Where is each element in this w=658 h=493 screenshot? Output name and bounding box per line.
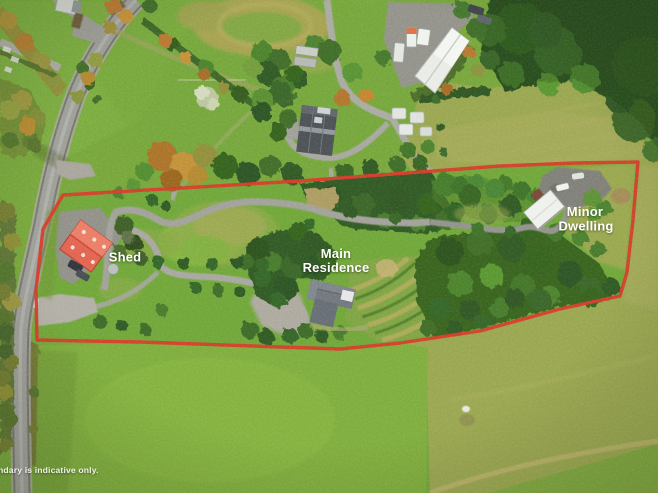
svg-text:ndary is indicative only.: ndary is indicative only. [0,465,99,475]
svg-text:Residence: Residence [303,260,370,275]
svg-text:Dwelling: Dwelling [558,219,613,234]
svg-text:Main: Main [321,246,351,261]
svg-text:Minor: Minor [567,204,603,219]
svg-text:Shed: Shed [109,250,142,265]
